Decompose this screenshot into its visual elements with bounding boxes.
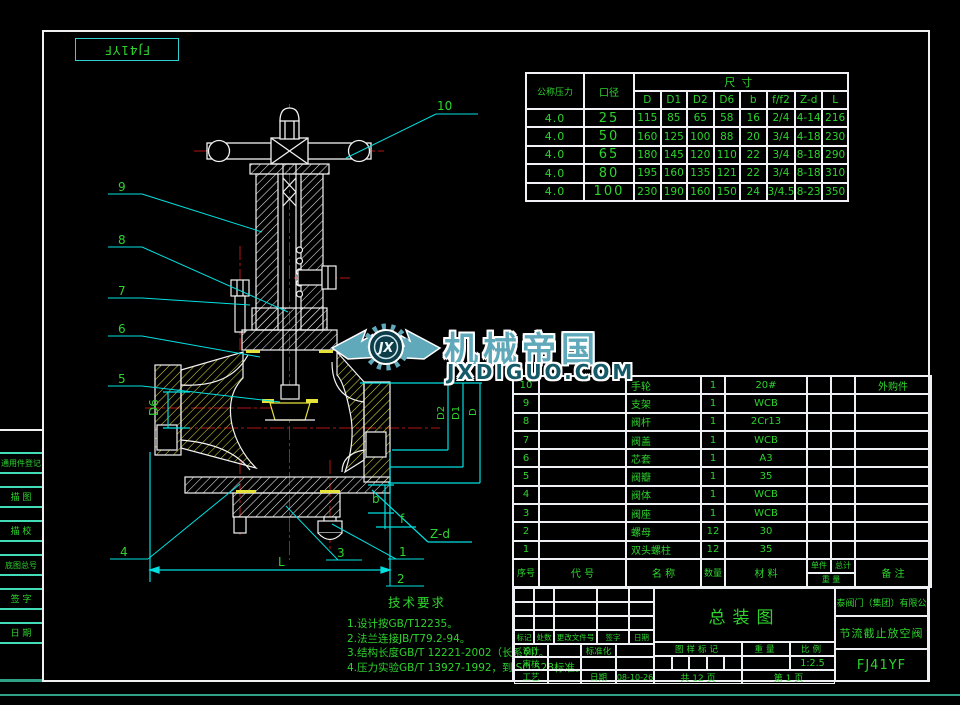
bom-remark <box>855 449 931 467</box>
bom-code <box>539 431 626 449</box>
dim-value: 195 <box>634 164 661 182</box>
bom-no: 4 <box>513 486 539 504</box>
dim-value: 8-18 <box>795 164 822 182</box>
balloon-6: 6 <box>118 322 126 336</box>
title-block: 标记 处数 更改文件号 签字 日期 设计 标准化 审核 工艺 日期 08-10-… <box>512 586 930 682</box>
dim-subheader: D <box>634 91 661 109</box>
bom-qty: 1 <box>701 467 725 485</box>
bom-code <box>539 394 626 412</box>
bom-qty: 1 <box>701 394 725 412</box>
stamp-boxes <box>654 656 742 670</box>
role-process: 工艺 <box>514 670 548 684</box>
bom-qty: 1 <box>701 431 725 449</box>
dim-row: 4.025115856558162/44-14216 <box>526 109 848 127</box>
bom-remark: 外购件 <box>855 376 931 394</box>
bom-material: A3 <box>725 449 807 467</box>
scale-header: 比例 <box>790 642 835 656</box>
role-check-sign <box>548 657 581 670</box>
stamp-signature: 签 字 <box>0 588 42 610</box>
dim-label-L: L <box>278 555 285 569</box>
dim-value: 3/4.5 <box>767 183 796 201</box>
tech-req-item: 2.法兰连接JB/T79.2-94。 <box>347 632 527 647</box>
role-design: 设计 <box>514 644 548 657</box>
dim-value: 22 <box>740 164 767 182</box>
bom-total-weight <box>831 431 855 449</box>
rev-header-date: 日期 <box>629 630 654 644</box>
bom-no: 9 <box>513 394 539 412</box>
bom-header-qty: 数量 <box>701 559 725 587</box>
bom-header-unit: 单件 <box>807 559 831 573</box>
bom-header-name: 名 称 <box>626 559 701 587</box>
watermark: JX 机械帝国 JXDIGUO.COM <box>330 312 660 386</box>
dim-value: 20 <box>740 127 767 145</box>
corner-model-text: FJ41YF <box>104 43 150 57</box>
bom-header-material: 材 料 <box>725 559 807 587</box>
weight-header: 重量 <box>742 642 790 656</box>
dim-bore: 50 <box>584 127 634 145</box>
bom-total-weight <box>831 522 855 540</box>
dim-value: 230 <box>634 183 661 201</box>
dim-subheader: D1 <box>661 91 688 109</box>
bom-row: 7阀盖1WCB <box>513 431 931 449</box>
dim-value: 3/4 <box>767 127 796 145</box>
dim-label-b: b <box>372 492 380 506</box>
dim-pressure: 4.0 <box>526 164 584 182</box>
drawing-title-cell: 总装图 <box>654 588 835 642</box>
balloon-3: 3 <box>337 546 345 560</box>
dim-value: 3/4 <box>767 146 796 164</box>
dim-value: 100 <box>687 127 714 145</box>
dim-header-size: 尺寸 <box>634 73 848 91</box>
dim-value: 350 <box>822 183 849 201</box>
bom-name: 阀杆 <box>626 413 701 431</box>
bom-row: 4阀体1WCB <box>513 486 931 504</box>
bom-remark <box>855 394 931 412</box>
bom-material: 35 <box>725 541 807 559</box>
bom-code <box>539 449 626 467</box>
bom-material: WCB <box>725 394 807 412</box>
bom-code <box>539 522 626 540</box>
dim-value: 145 <box>661 146 688 164</box>
cad-canvas: { "frame": { "corner_model": "FJ41YF", "… <box>0 0 960 705</box>
dim-bore: 65 <box>584 146 634 164</box>
dim-pressure: 4.0 <box>526 127 584 145</box>
dim-bore: 100 <box>584 183 634 201</box>
bom-no: 1 <box>513 541 539 559</box>
bom-no: 6 <box>513 449 539 467</box>
stamp-trace-check: 描 校 <box>0 520 42 542</box>
bom-name: 双头螺柱 <box>626 541 701 559</box>
sheet-total: 共 12 页 <box>654 670 742 684</box>
dim-value: 135 <box>687 164 714 182</box>
bom-unit-weight <box>807 541 831 559</box>
bom-total-weight <box>831 413 855 431</box>
bom-no: 2 <box>513 522 539 540</box>
bom-no: 5 <box>513 467 539 485</box>
bom-header-weight: 重 量 <box>807 573 855 587</box>
dim-value: 8-18 <box>795 146 822 164</box>
dim-value: 216 <box>822 109 849 127</box>
dim-pressure: 4.0 <box>526 109 584 127</box>
rev-header-mark: 标记 <box>514 630 534 644</box>
bom-unit-weight <box>807 413 831 431</box>
dim-value: 230 <box>822 127 849 145</box>
bom-material: 20# <box>725 376 807 394</box>
bom-header-code: 代 号 <box>539 559 626 587</box>
bom-code <box>539 413 626 431</box>
dim-label-d1: D1 <box>451 406 462 420</box>
dim-row: 4.05016012510088203/44-18230 <box>526 127 848 145</box>
tech-req-item: 3.结构长度GB/T 12221-2002（长系列）。 <box>347 646 527 661</box>
company-name: 凯泰阀门（集团）有限公司 <box>835 588 928 616</box>
balloon-7: 7 <box>118 284 126 298</box>
dim-value: 121 <box>714 164 741 182</box>
bom-row: 6芯套1A3 <box>513 449 931 467</box>
bonnet <box>242 308 337 353</box>
bom-qty: 1 <box>701 504 725 522</box>
bom-name: 阀瓣 <box>626 467 701 485</box>
bom-no: 3 <box>513 504 539 522</box>
bom-qty: 1 <box>701 413 725 431</box>
dim-value: 58 <box>714 109 741 127</box>
bom-qty: 1 <box>701 376 725 394</box>
bom-remark <box>855 467 931 485</box>
revision-grid <box>514 588 654 630</box>
scale-value: 1:2.5 <box>790 656 835 670</box>
dim-label-d6: D6 <box>147 399 161 416</box>
bom-material: 30 <box>725 522 807 540</box>
dim-bore: 25 <box>584 109 634 127</box>
dim-value: 160 <box>687 183 714 201</box>
dim-subheader: Z-d <box>795 91 822 109</box>
stamp-date: 日 期 <box>0 622 42 644</box>
bom-unit-weight <box>807 376 831 394</box>
dim-value: 160 <box>634 127 661 145</box>
dim-value: 2/4 <box>767 109 796 127</box>
dim-value: 24 <box>740 183 767 201</box>
dim-value: 160 <box>661 164 688 182</box>
bom-name: 支架 <box>626 394 701 412</box>
dim-value: 310 <box>822 164 849 182</box>
dim-value: 85 <box>661 109 688 127</box>
dim-bore: 80 <box>584 164 634 182</box>
bom-material: 35 <box>725 467 807 485</box>
bom-remark <box>855 522 931 540</box>
bom-header-remark: 备 注 <box>855 559 931 587</box>
dim-value: 290 <box>822 146 849 164</box>
role-check-cell2 <box>581 657 616 670</box>
bom-row: 5阀瓣135 <box>513 467 931 485</box>
bom-code <box>539 467 626 485</box>
rev-header-sign: 签字 <box>597 630 629 644</box>
tech-req-item: 4.压力实验GB/T 13927-1992，到ISO 528标准。 <box>347 661 527 676</box>
dimension-table: 公称压力 口径 尺寸 D D1 D2 D6 b f/f2 Z-d L 4.025… <box>525 72 849 202</box>
dim-label-d2: D2 <box>436 406 447 420</box>
bom-unit-weight <box>807 467 831 485</box>
dim-subheader: f/f2 <box>767 91 796 109</box>
bom-material: WCB <box>725 431 807 449</box>
bom-name: 阀体 <box>626 486 701 504</box>
dim-row: 4.0100230190160150243/4.58-23350 <box>526 183 848 201</box>
tech-req-title: 技术要求 <box>362 592 472 611</box>
dim-value: 65 <box>687 109 714 127</box>
stamp-reuse-record: 通用件登记 <box>0 452 42 474</box>
bom-total-weight <box>831 394 855 412</box>
role-process-sign <box>548 670 581 684</box>
balloon-8: 8 <box>118 233 126 247</box>
sheet-number: 第 1 页 <box>742 670 835 684</box>
bom-code <box>539 504 626 522</box>
bom-header-total: 总计 <box>831 559 855 573</box>
bom-material: WCB <box>725 486 807 504</box>
rev-header-count: 处数 <box>534 630 554 644</box>
bom-total-weight <box>831 486 855 504</box>
dim-subheader: D6 <box>714 91 741 109</box>
model-number: FJ41YF <box>835 649 928 682</box>
date-value: 08-10-26 <box>616 670 654 684</box>
corner-model-box: FJ41YF <box>75 38 179 61</box>
dim-value: 8-23 <box>795 183 822 201</box>
role-standard: 标准化 <box>581 644 616 657</box>
dim-value: 4-18 <box>795 127 822 145</box>
bom-remark <box>855 413 931 431</box>
technical-requirements: 技术要求 1.设计按GB/T12235。 2.法兰连接JB/T79.2-94。 … <box>347 592 527 675</box>
drawing-title: 总装图 <box>709 603 781 628</box>
bom-remark <box>855 504 931 522</box>
dim-value: 120 <box>687 146 714 164</box>
stamp-header: 图样标记 <box>654 642 742 656</box>
balloon-5: 5 <box>118 372 126 386</box>
stamp-master-number: 底图总号 <box>0 554 42 576</box>
bom-total-weight <box>831 467 855 485</box>
dim-value: 88 <box>714 127 741 145</box>
dim-label-d: D <box>468 408 479 416</box>
bom-table: 10手轮120#外购件9支架1WCB8阀杆12Cr137阀盖1WCB6芯套1A3… <box>512 375 932 588</box>
stamp-tracing: 描 图 <box>0 486 42 508</box>
balloon-2: 2 <box>397 572 405 586</box>
bom-total-weight <box>831 449 855 467</box>
bom-unit-weight <box>807 522 831 540</box>
bom-total-weight <box>831 504 855 522</box>
dim-header-pressure: 公称压力 <box>526 73 584 109</box>
bom-name: 芯套 <box>626 449 701 467</box>
winged-gear-logo: JX <box>330 316 442 378</box>
balloon-4: 4 <box>120 545 128 559</box>
dim-header-bore: 口径 <box>584 73 634 109</box>
dim-value: 115 <box>634 109 661 127</box>
role-design-sign <box>548 644 581 657</box>
bom-remark <box>855 486 931 504</box>
watermark-site: JXDIGUO.COM <box>447 360 635 384</box>
balloon-1: 1 <box>399 545 407 559</box>
bom-qty: 1 <box>701 449 725 467</box>
dim-value: 110 <box>714 146 741 164</box>
bom-total-weight <box>831 376 855 394</box>
role-check: 审核 <box>514 657 548 670</box>
bom-qty: 12 <box>701 522 725 540</box>
handwheel <box>207 108 371 164</box>
dim-label-f: f <box>400 512 405 526</box>
dim-value: 150 <box>714 183 741 201</box>
bom-remark <box>855 541 931 559</box>
product-name: 节流截止放空阀 <box>835 616 928 649</box>
bom-unit-weight <box>807 486 831 504</box>
bom-code <box>539 541 626 559</box>
bom-no: 8 <box>513 413 539 431</box>
tech-req-item: 1.设计按GB/T12235。 <box>347 617 527 632</box>
dim-value: 190 <box>661 183 688 201</box>
left-border-end <box>0 679 42 682</box>
role-check-cell3 <box>616 657 654 670</box>
bom-material: WCB <box>725 504 807 522</box>
dim-value: 180 <box>634 146 661 164</box>
bom-name: 阀盖 <box>626 431 701 449</box>
bom-unit-weight <box>807 394 831 412</box>
bottom-layout-line <box>0 694 960 696</box>
bom-row: 9支架1WCB <box>513 394 931 412</box>
dim-value: 125 <box>661 127 688 145</box>
bom-unit-weight <box>807 449 831 467</box>
weight-value <box>742 656 790 670</box>
dim-pressure: 4.0 <box>526 183 584 201</box>
bom-unit-weight <box>807 431 831 449</box>
bom-header-no: 序号 <box>513 559 539 587</box>
dim-row: 4.080195160135121223/48-18310 <box>526 164 848 182</box>
bom-row: 1双头螺柱1235 <box>513 541 931 559</box>
bom-no: 7 <box>513 431 539 449</box>
dim-value: 4-14 <box>795 109 822 127</box>
bom-row: 2螺母1230 <box>513 522 931 540</box>
bom-code <box>539 486 626 504</box>
bom-remark <box>855 431 931 449</box>
dim-subheader: b <box>740 91 767 109</box>
bom-name: 螺母 <box>626 522 701 540</box>
dim-row: 4.065180145120110223/48-18290 <box>526 146 848 164</box>
bom-row: 3阀座1WCB <box>513 504 931 522</box>
bom-row: 8阀杆12Cr13 <box>513 413 931 431</box>
bom-qty: 12 <box>701 541 725 559</box>
dim-pressure: 4.0 <box>526 146 584 164</box>
dim-subheader: L <box>822 91 849 109</box>
balloon-10: 10 <box>437 99 452 113</box>
bom-material: 2Cr13 <box>725 413 807 431</box>
dim-value: 22 <box>740 146 767 164</box>
dim-label-zd: Z-d <box>430 527 450 541</box>
bom-total-weight <box>831 541 855 559</box>
dim-value: 3/4 <box>767 164 796 182</box>
bom-qty: 1 <box>701 486 725 504</box>
bom-unit-weight <box>807 504 831 522</box>
dim-subheader: D2 <box>687 91 714 109</box>
logo-monogram: JX <box>376 341 395 356</box>
bom-name: 阀座 <box>626 504 701 522</box>
label-date: 日期 <box>581 670 616 684</box>
balloon-9: 9 <box>118 180 126 194</box>
rev-header-file: 更改文件号 <box>554 630 597 644</box>
dim-value: 16 <box>740 109 767 127</box>
left-border-line <box>0 429 42 431</box>
role-standard-sign <box>616 644 654 657</box>
